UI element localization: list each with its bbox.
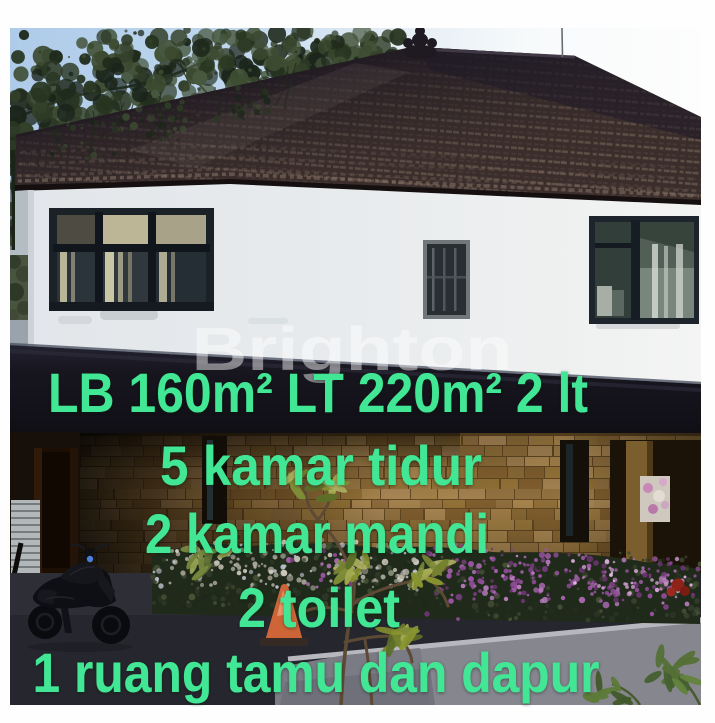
svg-text:LB 160m² LT 220m² 2 lt: LB 160m² LT 220m² 2 lt — [48, 361, 588, 424]
svg-text:1 ruang tamu dan dapur: 1 ruang tamu dan dapur — [33, 641, 600, 704]
svg-text:5 kamar tidur: 5 kamar tidur — [160, 434, 482, 497]
svg-text:2 kamar mandi: 2 kamar mandi — [145, 502, 489, 565]
svg-text:2 toilet: 2 toilet — [238, 576, 400, 639]
